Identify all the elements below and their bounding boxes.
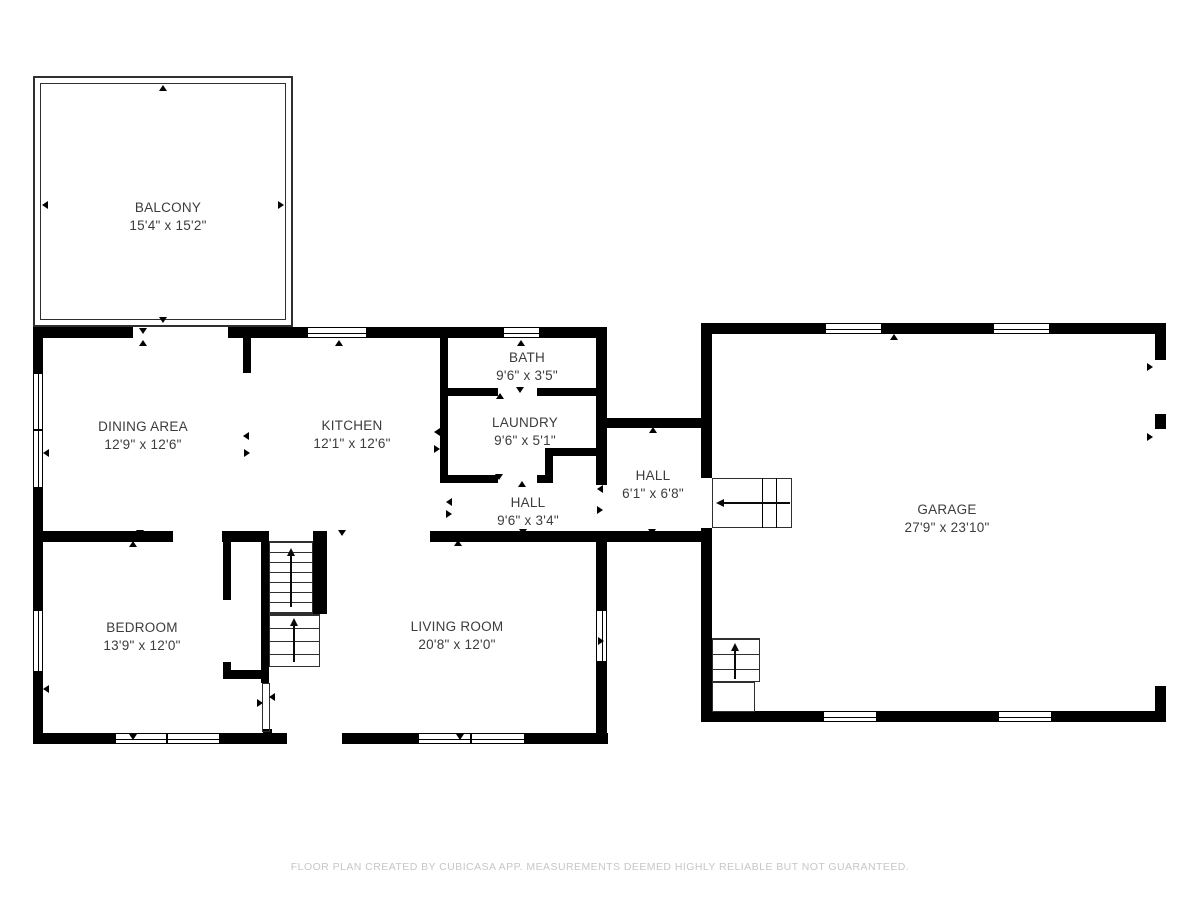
window-bottom-living-mullion-0 (470, 734, 472, 743)
marker-dining-stub-a (243, 432, 249, 440)
room-name-balcony: BALCONY (129, 199, 206, 217)
marker-bath-door-b (496, 393, 504, 399)
window-top-kitchen-pane (308, 333, 366, 334)
kitchen-divider-wall (440, 338, 448, 482)
window-garage-top-a-pane (826, 329, 881, 330)
window-garage-bottom-b (998, 711, 1052, 722)
marker-bath-door-a (516, 387, 524, 393)
stairs-direction-arrow-garage-head (731, 643, 739, 651)
room-name-kitchen: KITCHEN (313, 417, 390, 435)
garage-top-wall-a (701, 323, 825, 334)
bath-bottom-wall-b (537, 388, 596, 396)
room-label-bedroom: BEDROOM13'9" x 12'0" (103, 619, 180, 655)
room-name-hall-center: HALL (497, 494, 559, 512)
marker-laundry-door-a (495, 474, 503, 480)
window-right-living (596, 610, 607, 662)
window-left-dining-mullion-0 (34, 429, 42, 431)
marker-garage-top (890, 334, 898, 340)
window-left-bedroom-pane (38, 611, 39, 671)
window-bottom-bedroom-mullion-0 (166, 734, 168, 743)
room-label-living-room: LIVING ROOM20'8" x 12'0" (411, 618, 504, 654)
window-top-kitchen (307, 327, 367, 338)
room-label-bath: BATH9'6" x 3'5" (496, 349, 558, 385)
marker-balcony-left (42, 201, 48, 209)
house-right-wall-c (596, 662, 607, 744)
house-top-wall-a (33, 327, 133, 338)
garage-right-pier (1155, 414, 1166, 429)
stairs-direction-arrow-main-lower-head (290, 618, 298, 626)
room-name-laundry: LAUNDRY (492, 414, 558, 432)
house-top-wall-b (228, 327, 307, 338)
garage-stairs-landing (712, 682, 755, 712)
house-bottom-wall-c (342, 733, 418, 744)
marker-exthall-top (649, 427, 657, 433)
house-right-wall-a (596, 327, 607, 485)
marker-balcony-bottom (159, 317, 167, 323)
room-dims-hall-upper: 6'1" x 6'8" (622, 485, 684, 503)
entry-vestibule-rail (262, 683, 270, 732)
house-right-wall-b (596, 531, 607, 610)
marker-front-door-a (257, 699, 263, 707)
marker-hall-bottom (454, 540, 462, 546)
marker-balcony-right (278, 201, 284, 209)
marker-window-left-dining (43, 449, 49, 457)
garage-top-wall-c (1050, 323, 1166, 334)
stairs-direction-arrow-main-upper-shaft (290, 555, 292, 607)
dining-kitchen-stub (243, 338, 251, 373)
marker-window-left-bedroom (43, 685, 49, 693)
window-left-dining (33, 373, 43, 488)
room-name-living-room: LIVING ROOM (411, 618, 504, 636)
marker-kitchen-living-opening (338, 530, 346, 536)
marker-garage-bottom (890, 712, 898, 718)
stairs-direction-arrow-hall-shaft (723, 502, 790, 504)
marker-kitchen-hall-door-a (446, 498, 452, 506)
room-name-hall-upper: HALL (622, 467, 684, 485)
room-label-hall-upper: HALL6'1" x 6'8" (622, 467, 684, 503)
bath-bottom-wall-a (448, 388, 498, 396)
room-dims-living-room: 20'8" x 12'0" (411, 636, 504, 654)
room-dims-balcony: 15'4" x 15'2" (129, 217, 206, 235)
room-label-balcony: BALCONY15'4" x 15'2" (129, 199, 206, 235)
stair-left-wall (261, 531, 269, 683)
window-garage-bottom-b-pane (999, 717, 1051, 718)
room-label-dining-area: DINING AREA12'9" x 12'6" (98, 418, 188, 454)
garage-top-wall-b (882, 323, 993, 334)
marker-window-bottom-living (456, 734, 464, 740)
marker-dining-stub-b (244, 449, 250, 457)
stairs-direction-arrow-main-lower-shaft (293, 625, 295, 662)
garage-bottom-wall-a (701, 711, 823, 722)
house-left-wall-a (33, 327, 43, 373)
stair-right-wall (313, 531, 327, 614)
house-bottom-wall-b (220, 733, 287, 744)
marker-balcony-top (159, 85, 167, 91)
room-label-garage: GARAGE27'9" x 23'10" (904, 501, 989, 537)
house-bottom-wall-a (33, 733, 115, 744)
garage-right-wall-a (1155, 323, 1166, 360)
room-dims-dining-area: 12'9" x 12'6" (98, 436, 188, 454)
marker-window-bottom-bedroom (129, 734, 137, 740)
marker-front-door-b (269, 693, 275, 701)
room-dims-kitchen: 12'1" x 12'6" (313, 435, 390, 453)
room-dims-garage: 27'9" x 23'10" (904, 519, 989, 537)
marker-bedroom-door-b (129, 541, 137, 547)
marker-kitchen-divider-a (434, 428, 440, 436)
room-name-bath: BATH (496, 349, 558, 367)
window-top-bath (503, 327, 540, 338)
marker-laundry-door-b (518, 481, 526, 487)
marker-bedroom-door-a (136, 530, 144, 536)
room-dims-hall-center: 9'6" x 3'4" (497, 512, 559, 530)
room-name-bedroom: BEDROOM (103, 619, 180, 637)
laundry-bottom-wall-a (440, 475, 498, 483)
room-dims-laundry: 9'6" x 5'1" (492, 432, 558, 450)
stairs-direction-arrow-main-upper-head (287, 548, 295, 556)
mid-wall-a (33, 531, 173, 542)
garage-left-wall-b (701, 528, 712, 721)
marker-balcony-door-b (139, 340, 147, 346)
window-top-bath-pane (504, 333, 539, 334)
window-right-living-pane (602, 611, 603, 661)
stairs-direction-arrow-garage-shaft (734, 650, 736, 679)
footer-disclaimer: FLOOR PLAN CREATED BY CUBICASA APP. MEAS… (0, 861, 1200, 873)
marker-window-right-living (598, 637, 604, 645)
room-label-hall-center: HALL9'6" x 3'4" (497, 494, 559, 530)
room-dims-bath: 9'6" x 3'5" (496, 367, 558, 385)
marker-window-top-bath (517, 340, 525, 346)
window-left-bedroom (33, 610, 43, 672)
window-garage-top-b-pane (994, 329, 1049, 330)
marker-garage-door-a (1147, 363, 1153, 371)
marker-balcony-door-a (139, 328, 147, 334)
room-label-laundry: LAUNDRY9'6" x 5'1" (492, 414, 558, 450)
window-garage-bottom-a-pane (824, 717, 876, 718)
marker-kitchen-hall-door-b (446, 510, 452, 518)
room-label-kitchen: KITCHEN12'1" x 12'6" (313, 417, 390, 453)
marker-window-top-kitchen (335, 340, 343, 346)
window-bottom-living (418, 733, 525, 744)
garage-left-wall-a (701, 323, 712, 478)
room-name-garage: GARAGE (904, 501, 989, 519)
floor-plan: FLOOR PLAN CREATED BY CUBICASA APP. MEAS… (0, 0, 1200, 900)
room-name-dining-area: DINING AREA (98, 418, 188, 436)
marker-kitchen-divider-b (434, 445, 440, 453)
garage-bottom-wall-c (1052, 711, 1166, 722)
marker-garage-door-b (1147, 433, 1153, 441)
marker-right-wall-door-a (597, 485, 603, 493)
house-top-wall-c (367, 327, 503, 338)
window-garage-bottom-a (823, 711, 877, 722)
marker-right-wall-door-b (597, 506, 603, 514)
window-garage-top-a (825, 323, 882, 334)
house-left-wall-b (33, 488, 43, 610)
closet-left-wall-a (223, 531, 231, 600)
marker-exthall-bottom (648, 529, 656, 535)
window-garage-top-b (993, 323, 1050, 334)
room-dims-bedroom: 13'9" x 12'0" (103, 637, 180, 655)
stairs-direction-arrow-hall-head (716, 499, 724, 507)
